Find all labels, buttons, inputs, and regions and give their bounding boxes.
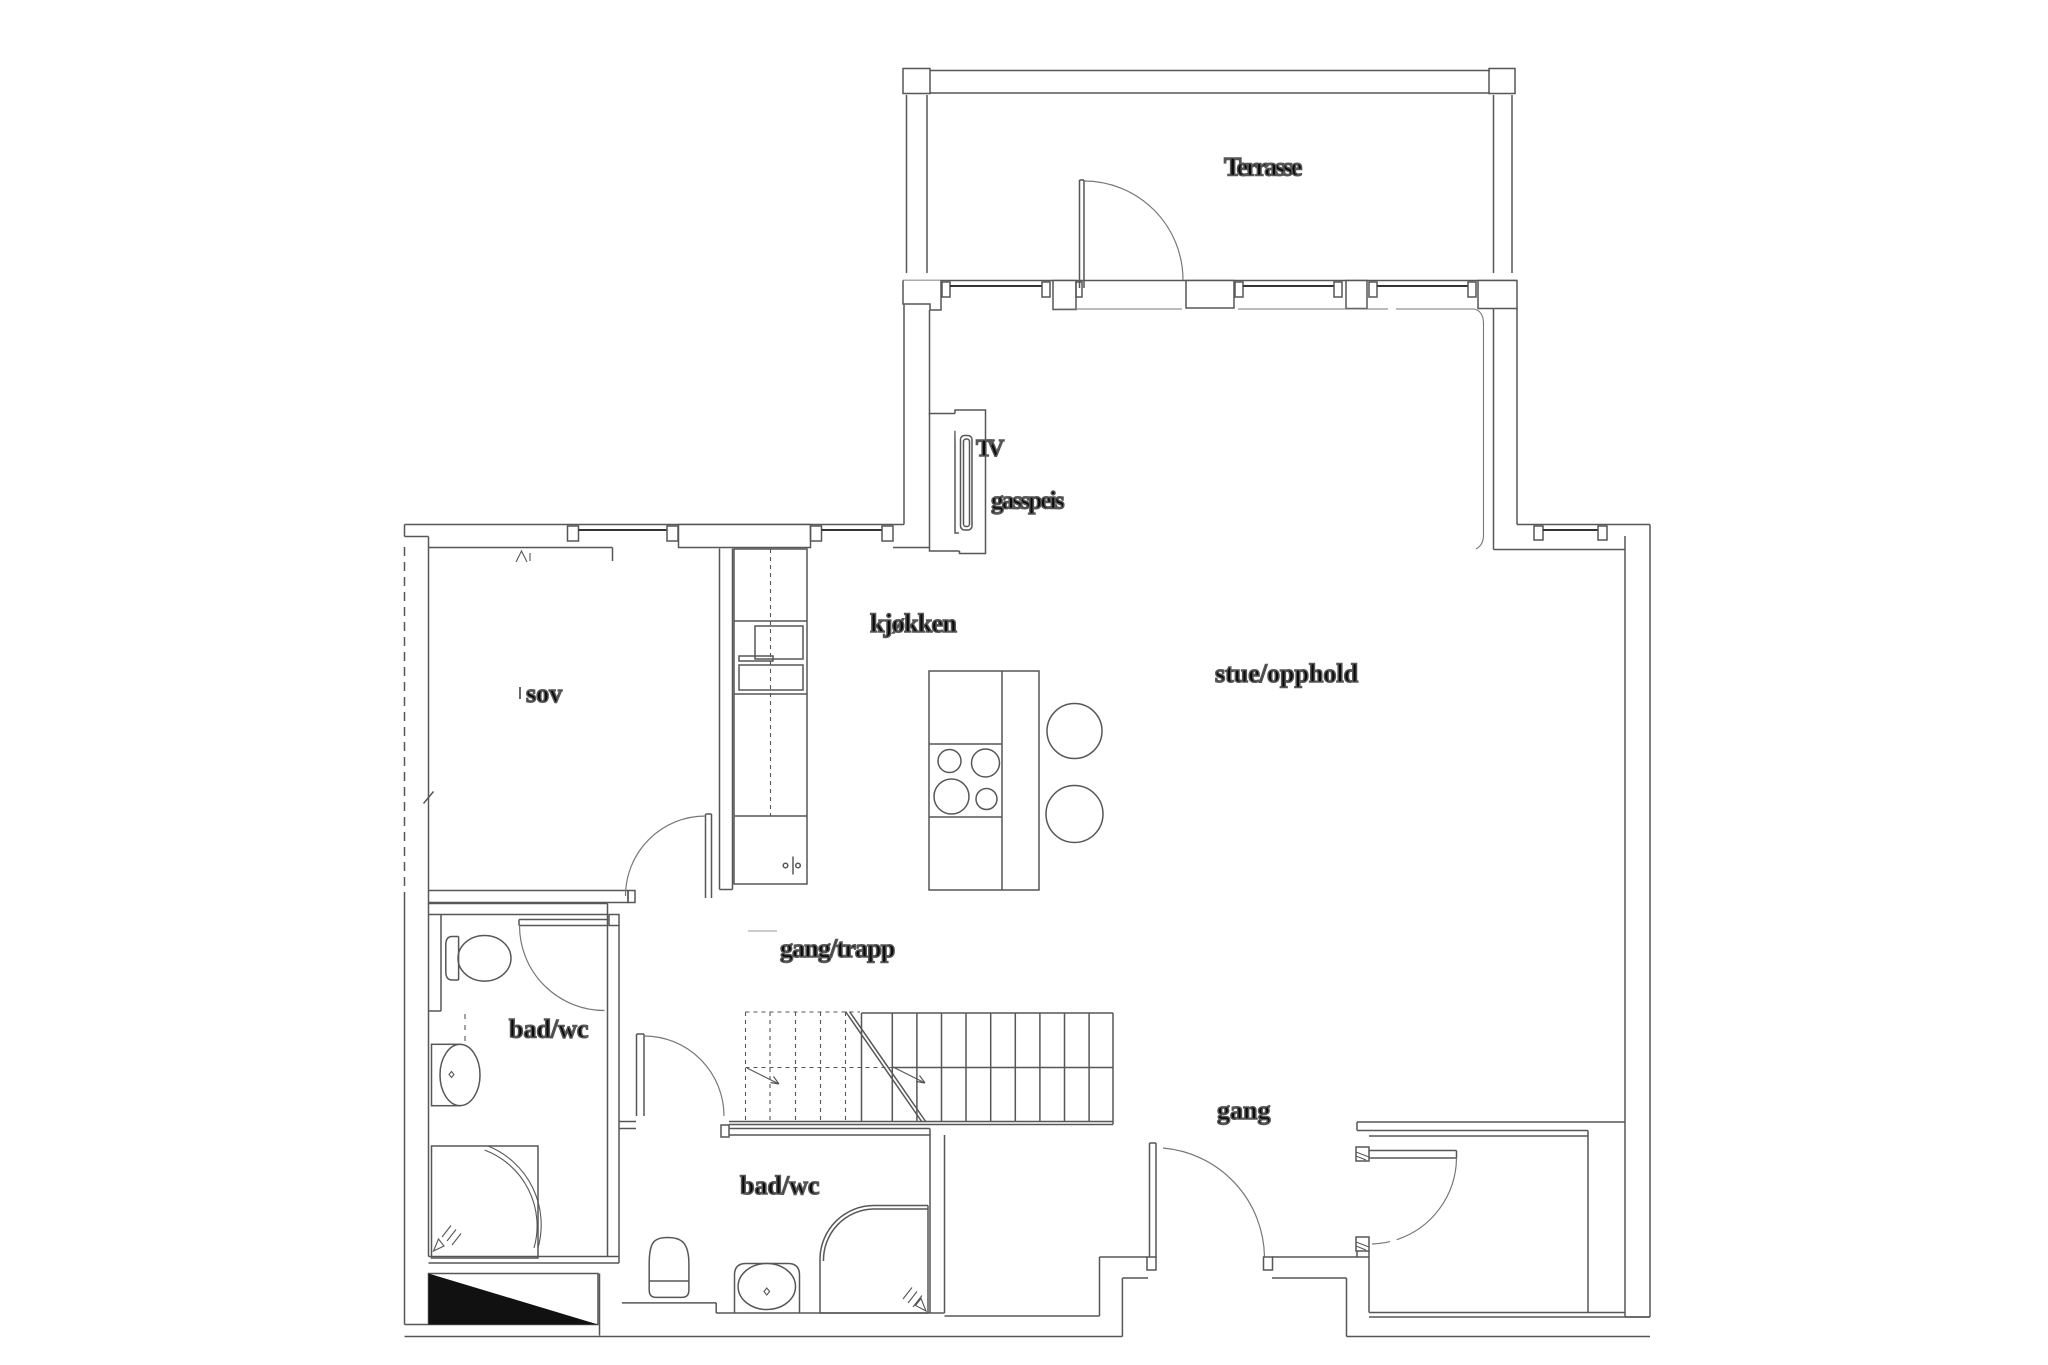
svg-text:kjøkken: kjøkken: [870, 609, 957, 638]
svg-text:TV: TV: [976, 436, 1005, 462]
svg-text:gasspeis: gasspeis: [991, 488, 1065, 515]
svg-text:bad/wc: bad/wc: [509, 1015, 588, 1044]
svg-text:gang/trapp: gang/trapp: [780, 934, 895, 963]
svg-text:gang: gang: [1217, 1096, 1270, 1125]
svg-text:stue/opphold: stue/opphold: [1215, 659, 1359, 688]
svg-text:bad/wc: bad/wc: [740, 1171, 819, 1200]
svg-text:sov: sov: [526, 679, 562, 708]
svg-text:Terrasse: Terrasse: [1224, 153, 1302, 182]
